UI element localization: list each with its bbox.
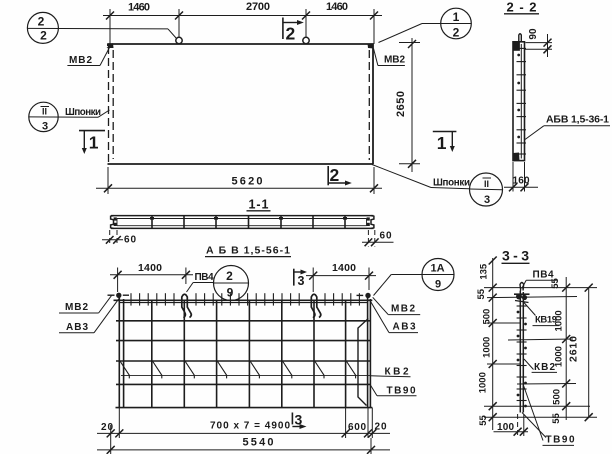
svg-text:500: 500 bbox=[552, 389, 563, 405]
svg-text:II: II bbox=[484, 179, 489, 189]
svg-text:3-3: 3-3 bbox=[502, 248, 529, 264]
svg-text:МВ2: МВ2 bbox=[69, 55, 92, 66]
svg-text:90: 90 bbox=[528, 28, 539, 40]
svg-text:700 х 7 = 4900: 700 х 7 = 4900 bbox=[210, 421, 290, 432]
svg-text:1400: 1400 bbox=[138, 262, 162, 274]
svg-text:2650: 2650 bbox=[395, 91, 407, 117]
svg-text:1: 1 bbox=[437, 133, 447, 153]
svg-text:2: 2 bbox=[226, 269, 233, 283]
svg-text:55: 55 bbox=[551, 413, 562, 424]
svg-text:1000: 1000 bbox=[482, 337, 493, 358]
svg-text:КВ19: КВ19 bbox=[535, 315, 557, 326]
svg-text:МВ2: МВ2 bbox=[391, 304, 415, 315]
svg-text:Шпонки: Шпонки bbox=[65, 107, 101, 118]
svg-text:1А: 1А bbox=[430, 263, 444, 275]
svg-text:100: 100 bbox=[497, 422, 514, 433]
svg-text:1: 1 bbox=[89, 133, 99, 153]
svg-text:1000: 1000 bbox=[554, 346, 565, 367]
svg-text:АБВ 1,5-36-1: АБВ 1,5-36-1 bbox=[546, 114, 609, 126]
svg-text:600: 600 bbox=[348, 422, 366, 433]
svg-text:ТВ90: ТВ90 bbox=[546, 435, 575, 446]
svg-text:2700: 2700 bbox=[246, 1, 270, 13]
svg-text:2: 2 bbox=[330, 165, 340, 185]
svg-text:3: 3 bbox=[42, 121, 48, 133]
svg-text:2610: 2610 bbox=[568, 336, 580, 362]
svg-text:500: 500 bbox=[482, 309, 493, 325]
svg-text:АВ3: АВ3 bbox=[393, 322, 416, 333]
svg-text:ПВ4: ПВ4 bbox=[195, 272, 214, 283]
svg-text:КВ2: КВ2 bbox=[534, 362, 555, 373]
svg-text:20: 20 bbox=[375, 422, 387, 433]
svg-text:1: 1 bbox=[453, 10, 460, 24]
svg-text:МВ2: МВ2 bbox=[65, 302, 88, 313]
svg-text:2: 2 bbox=[453, 26, 460, 40]
svg-text:II: II bbox=[42, 107, 47, 117]
svg-text:9: 9 bbox=[435, 279, 441, 291]
svg-text:3: 3 bbox=[298, 274, 305, 288]
svg-text:160: 160 bbox=[513, 176, 530, 187]
svg-text:Шпонки: Шпонки bbox=[433, 178, 470, 189]
svg-text:2: 2 bbox=[286, 24, 296, 44]
svg-text:55: 55 bbox=[478, 415, 489, 426]
svg-text:55: 55 bbox=[476, 288, 487, 299]
svg-text:2-2: 2-2 bbox=[507, 0, 537, 15]
svg-text:1000: 1000 bbox=[478, 372, 489, 393]
svg-text:60: 60 bbox=[124, 235, 136, 246]
svg-text:135: 135 bbox=[478, 263, 489, 280]
svg-text:60: 60 bbox=[380, 230, 392, 241]
svg-text:А Б В 1,5-56-1: А Б В 1,5-56-1 bbox=[206, 245, 290, 257]
svg-text:55: 55 bbox=[550, 278, 561, 289]
svg-text:ТВ90: ТВ90 bbox=[387, 386, 416, 397]
svg-text:МВ2: МВ2 bbox=[384, 55, 405, 66]
svg-text:1460: 1460 bbox=[128, 2, 150, 14]
svg-text:1460: 1460 bbox=[326, 1, 348, 13]
svg-text:2: 2 bbox=[38, 15, 45, 29]
svg-text:1-1: 1-1 bbox=[249, 198, 269, 212]
svg-text:АВ3: АВ3 bbox=[66, 322, 88, 333]
svg-text:20: 20 bbox=[101, 422, 113, 433]
svg-text:3: 3 bbox=[484, 194, 490, 206]
svg-text:1400: 1400 bbox=[332, 262, 356, 274]
svg-text:2: 2 bbox=[40, 29, 47, 43]
